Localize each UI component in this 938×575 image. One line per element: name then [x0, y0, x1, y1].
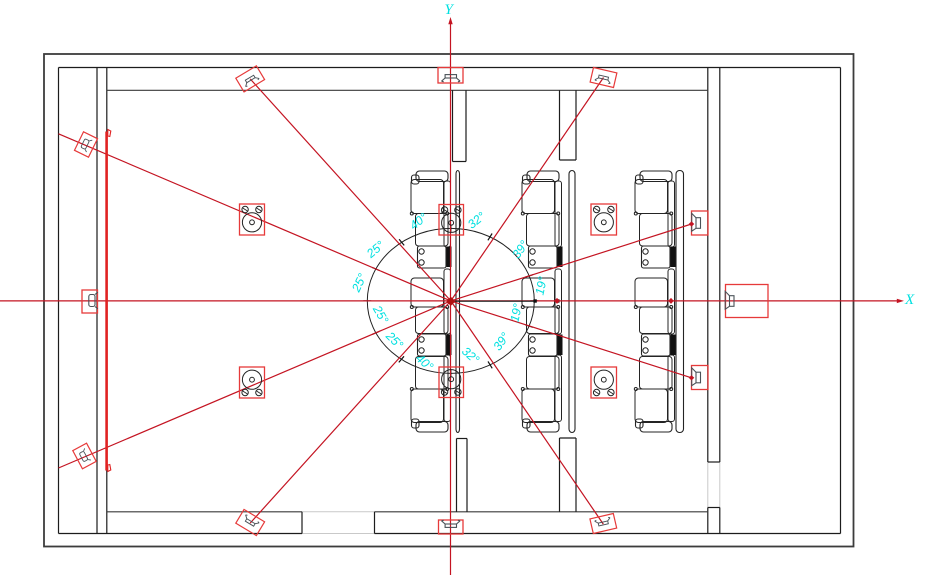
svg-text:25°: 25° [370, 302, 392, 326]
svg-text:25°: 25° [349, 271, 370, 295]
svg-text:19°: 19° [532, 275, 550, 296]
svg-text:32°: 32° [465, 209, 488, 231]
svg-text:40°: 40° [413, 351, 436, 374]
svg-text:25°: 25° [382, 328, 406, 352]
svg-text:X: X [904, 292, 915, 308]
svg-text:32°: 32° [459, 344, 482, 367]
svg-text:39°: 39° [490, 330, 512, 353]
svg-text:Y: Y [445, 2, 455, 18]
svg-text:19°: 19° [507, 302, 525, 323]
